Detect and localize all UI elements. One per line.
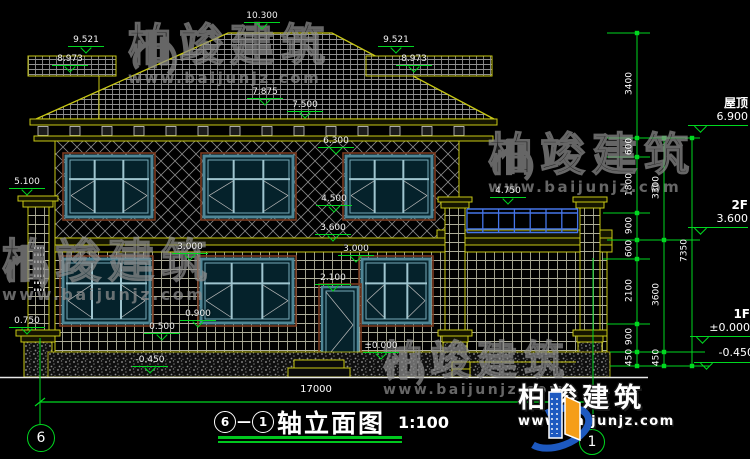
dim-inner-900: 900 <box>626 317 635 357</box>
elevation-marker-band-right-top: 9.521 <box>374 36 418 52</box>
floor-marker-roof: 屋顶 6.900 <box>688 97 748 131</box>
elevation-marker-band-left-top: 9.521 <box>64 36 108 52</box>
title-underline-2 <box>218 441 402 443</box>
dim-inner-2100: 2100 <box>626 271 635 311</box>
elevation-marker-floor2: 3.600 <box>311 224 355 240</box>
dim-inner-1800: 1800 <box>626 165 635 205</box>
drawing-title: 6 — 1 轴立面图 1:100 <box>214 404 449 440</box>
floor-marker-2f: 2F 3.600 <box>688 199 748 233</box>
elevation-marker-window2-top: 6.300 <box>314 137 358 153</box>
elevation-marker-door-top: 2.100 <box>311 274 355 290</box>
elevation-marker-pillar-base: 0.750 <box>5 317 49 333</box>
axis-bubble-6: 6 <box>27 424 55 452</box>
dim-total-width: 17000 <box>281 384 351 395</box>
elevation-marker-railing-top: 4.750 <box>486 187 530 203</box>
elevation-marker-plinth-step: 0.500 <box>140 323 184 339</box>
elevation-marker-ground-zero: ±0.000 <box>359 342 403 358</box>
title-axis-to: 1 <box>252 411 274 433</box>
elevation-marker-band-left-bottom: 8.973 <box>48 55 92 71</box>
elevation-marker-band-right-bottom: 8.973 <box>392 55 436 71</box>
title-underline <box>218 436 402 439</box>
elevation-drawing-canvas: 10.300 9.521 8.973 9.521 8.973 7.875 7.5… <box>0 0 750 459</box>
elevation-marker-window1-top-right: 3.000 <box>334 245 378 261</box>
dim-inner-900b: 900 <box>626 206 635 246</box>
elevation-marker-ridge: 10.300 <box>240 12 284 28</box>
elevation-marker-roof-edge: 7.875 <box>243 88 287 104</box>
floor-marker-below-ground: -0.450 <box>694 347 750 368</box>
title-axis-from: 6 <box>214 411 236 433</box>
dim-middle-450: 450 <box>653 338 662 378</box>
brand-logo-icon <box>518 384 622 456</box>
dim-inner-3400: 3400 <box>626 64 635 104</box>
elevation-marker-eave: 7.500 <box>283 101 327 117</box>
elevation-marker-window2-sill: 4.500 <box>312 195 356 211</box>
elevation-marker-ground-below: -0.450 <box>128 356 172 372</box>
dim-middle-3600: 3600 <box>653 275 662 315</box>
floor-marker-1f: 1F ±0.000 <box>690 308 750 342</box>
title-text: 轴立面图 <box>277 404 385 440</box>
title-scale: 1:100 <box>398 413 449 432</box>
title-dash: — <box>237 414 251 430</box>
dim-middle-3300: 3300 <box>653 168 662 208</box>
brand-logo: 柏竣建筑 www.baijunjz.com <box>518 384 675 429</box>
dim-outer-7350: 7350 <box>681 231 690 271</box>
dim-inner-600b: 600 <box>626 127 635 167</box>
elevation-marker-pillar-top: 5.100 <box>5 178 49 194</box>
elevation-marker-window1-top-left: 3.000 <box>168 243 212 259</box>
